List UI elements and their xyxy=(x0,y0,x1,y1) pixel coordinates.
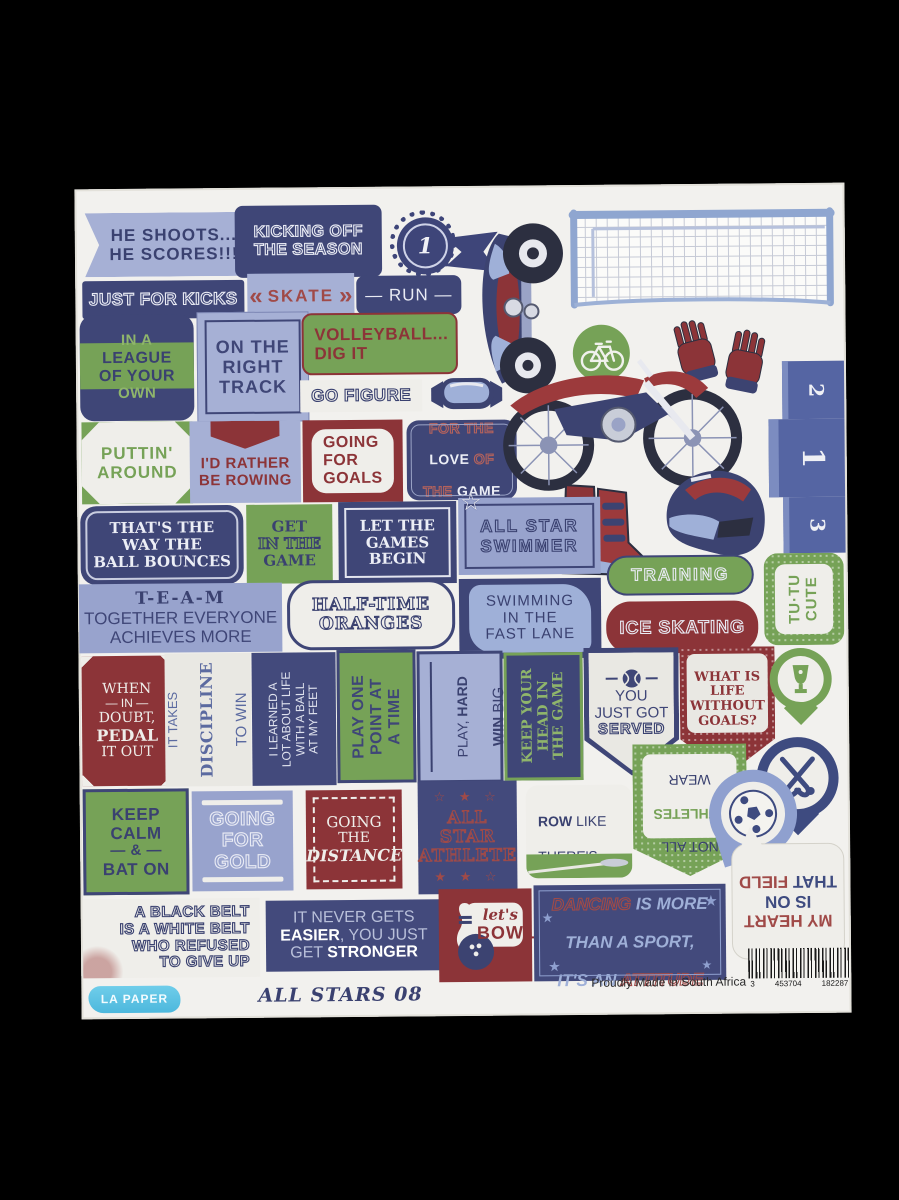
sticker-lets-bowl: let's BOWL xyxy=(439,888,533,982)
brand-label: LA PAPER xyxy=(101,992,168,1006)
when-line5: IT OUT xyxy=(101,744,153,760)
just-for-kicks-label: JUST FOR KICKS xyxy=(89,289,238,309)
gold-bar-bottom xyxy=(202,877,283,883)
sticker-it-never-gets: IT NEVER GETS EASIER, YOU JUST GET STRON… xyxy=(266,899,443,972)
sticker-learned-ball-feet: I LEARNED A LOT ABOUT LIFE WITH A BALL A… xyxy=(251,652,336,786)
run-label: — RUN — xyxy=(365,285,452,305)
ice-skating-label: ICE SKATING xyxy=(619,616,745,637)
go-figure-label: GO FIGURE xyxy=(311,386,411,406)
sticker-sheet: HE SHOOTS... HE SCORES!!! KICKING OFF TH… xyxy=(74,183,851,1020)
rosette-center: 1 xyxy=(397,217,454,274)
sticker-ice-skating: ICE SKATING xyxy=(606,600,758,653)
sticker-going-the-distance: GOING THE DISTANCE xyxy=(306,790,403,890)
collection-title: ALL STARS 08 xyxy=(258,983,422,1006)
my-heart-line2: IS ON xyxy=(765,891,811,910)
get-in-line3: GAME xyxy=(263,552,316,569)
sticker-thats-the-way: THAT'S THE WAY THE BALL BOUNCES xyxy=(80,505,244,585)
sticker-my-heart-field: MY HEART IS ON THAT FIELD xyxy=(731,843,845,960)
it-never-line2b: , YOU JUST xyxy=(340,926,428,944)
he-shoots-label: HE SHOOTS... HE SCORES!!! xyxy=(109,225,238,264)
sticker-discipline: IT TAKES DISCIPLINE TO WIN xyxy=(164,653,251,787)
photo-background: HE SHOOTS... HE SCORES!!! KICKING OFF TH… xyxy=(0,0,899,1200)
my-heart-line3a: THAT xyxy=(788,872,837,891)
tennis-ball-row xyxy=(605,668,657,688)
rowing-label: I'D RATHER BE ROWING xyxy=(199,456,292,490)
sticker-training: TRAINING xyxy=(607,554,754,595)
when-line1: WHEN xyxy=(102,682,151,698)
dancing-star-4: ★ xyxy=(548,959,561,975)
one-point-label: PLAY ONE POINT AT A TIME xyxy=(349,656,404,776)
play-hard-l1a: PLAY, xyxy=(454,717,470,758)
league-line2: LEAGUE xyxy=(102,350,172,369)
kicking-off-label: KICKING OFF THE SEASON xyxy=(253,223,363,260)
keep-calm-line1: KEEP xyxy=(112,805,160,824)
puttin-label: PUTTIN' AROUND xyxy=(97,443,178,482)
sticker-all-star-athlete: ☆ ★ ☆ ALL STAR ATHLETE ★ ★ ☆ xyxy=(418,781,518,895)
sticker-keep-calm-bat-on: KEEP CALM — & — BAT ON xyxy=(83,788,190,895)
helmet-icon xyxy=(655,459,774,562)
team-line1: T-E-A-M xyxy=(135,589,225,609)
served-line3: SERVED xyxy=(598,722,666,739)
tutu-label: TU·TU CUTE xyxy=(787,574,821,624)
training-label: TRAINING xyxy=(631,565,729,585)
brand-logo: LA PAPER xyxy=(88,985,180,1013)
row-like-l1b: LIKE xyxy=(572,812,606,828)
skate-chevron-left: « xyxy=(249,283,263,310)
dancing-star-3: ★ xyxy=(701,958,712,972)
my-heart-line1: MY HEART xyxy=(744,910,833,930)
athlete-label: ALL STAR ATHLETE xyxy=(418,808,517,866)
podium-first: 1 xyxy=(795,447,829,468)
rosette-number: 1 xyxy=(418,233,434,259)
dancing-border xyxy=(539,889,722,977)
when-line3: DOUBT, xyxy=(99,711,156,727)
sticker-going-for-gold: GOING FOR GOLD xyxy=(192,790,294,891)
get-in-line2: IN THE xyxy=(258,535,321,552)
podium-third: 3 xyxy=(806,518,829,532)
sticker-run: — RUN — xyxy=(356,275,461,315)
play-hard-l1b: HARD xyxy=(454,676,470,717)
it-never-line3a: GET xyxy=(290,945,327,962)
volleyball-label: VOLLEYBALL... DIG IT xyxy=(314,324,445,363)
keep-calm-line4: BAT ON xyxy=(103,859,170,879)
sticker-get-in-the-game: GET IN THE GAME xyxy=(246,504,333,584)
sticker-go-figure: GO FIGURE xyxy=(300,379,422,412)
swimmer-star-icon: ☆ xyxy=(460,490,482,517)
sticker-black-belt: A BLACK BELT IS A WHITE BELT WHO REFUSED… xyxy=(83,898,261,979)
goals-label: GOING FOR GOALS xyxy=(323,434,383,488)
sticker-half-time-oranges: HALF-TIME ORANGES xyxy=(287,579,456,650)
sticker-volleyball-dig-it: VOLLEYBALL... DIG IT xyxy=(301,312,458,375)
sticker-all-star-swimmer: ☆ ALL STAR SWIMMER xyxy=(458,497,601,575)
play-hard-arrow xyxy=(430,662,433,772)
served-line2: JUST GOT xyxy=(594,705,668,722)
not-all-line3: WEAR xyxy=(653,771,726,787)
oar-icon xyxy=(526,856,632,877)
goggles-icon xyxy=(428,372,505,418)
league-line1: IN A xyxy=(121,333,153,350)
my-heart-line3b: FIELD xyxy=(739,873,788,892)
distance-dashed-border xyxy=(313,797,396,883)
sticker-keep-your-head: KEEP YOUR HEAD IN THE GAME xyxy=(503,652,583,781)
gold-bar-top xyxy=(202,800,283,806)
it-never-line2a: EASIER xyxy=(280,927,340,945)
keep-head-label: KEEP YOUR HEAD IN THE GAME xyxy=(519,658,567,774)
dancing-star-2: ★ xyxy=(704,894,718,911)
discipline-line3: TO WIN xyxy=(233,657,251,782)
black-belt-label: A BLACK BELT IS A WHITE BELT WHO REFUSED… xyxy=(119,904,250,972)
sticker-tutu-cute: TU·TU CUTE xyxy=(764,553,845,646)
served-line1: YOU xyxy=(615,688,648,705)
it-never-line3b: STRONGER xyxy=(327,944,418,962)
get-in-line1: GET xyxy=(272,519,308,536)
discipline-line2: DISCIPLINE xyxy=(197,657,216,782)
play-hard-rotated: PLAY, HARD WIN BIG xyxy=(412,658,509,777)
sticker-row-like: ROW LIKE THERE'S NO TOMO-ROW! xyxy=(526,785,633,879)
athlete-stars-top: ☆ ★ ☆ xyxy=(434,790,501,805)
sticker-id-rather-be-rowing: I'D RATHER BE ROWING xyxy=(189,420,301,503)
what-life-label: WHAT IS LIFE WITHOUT GOALS? xyxy=(690,670,765,729)
let-games-border xyxy=(344,507,451,578)
sticker-play-one-point: PLAY ONE POINT AT A TIME xyxy=(336,649,416,783)
sticker-swimming-fast-lane: SWIMMING IN THE FAST LANE xyxy=(459,578,602,659)
swimmer-border xyxy=(464,503,595,569)
sticker-team: T-E-A-M TOGETHER EVERYONE ACHIEVES MORE xyxy=(79,583,283,654)
athlete-stars-bottom: ★ ★ ☆ xyxy=(434,870,501,885)
sticker-in-a-league: IN A LEAGUE OF YOUR OWN xyxy=(79,314,194,421)
sticker-play-hard-win-big: PLAY, HARD WIN BIG xyxy=(416,651,503,784)
rowing-chevron xyxy=(210,421,279,449)
team-line2: TOGETHER EVERYONE xyxy=(84,608,277,629)
bowl-line2: BOWL xyxy=(477,922,536,943)
barcode-bars xyxy=(748,948,850,979)
barcode-digit-left: 3 xyxy=(750,979,755,988)
podium-second: 2 xyxy=(805,383,828,397)
made-in-label: Proudly Made in South Africa xyxy=(591,975,746,990)
barcode-digits-mid: 453704 xyxy=(775,979,802,988)
skate-label: SKATE xyxy=(268,287,335,307)
league-line3: OF YOUR xyxy=(99,368,175,387)
keep-calm-line3: — & — xyxy=(110,843,162,860)
trophy-pin-icon xyxy=(769,648,832,737)
keep-calm-line2: CALM xyxy=(110,824,161,843)
it-never-line1: IT NEVER GETS xyxy=(293,908,415,927)
row-like-l1a: ROW xyxy=(538,813,572,829)
barcode-digits-right: 182287 xyxy=(822,979,849,988)
league-line4: OWN xyxy=(118,386,156,403)
gold-label: GOING FOR GOLD xyxy=(209,809,275,873)
tennis-ball-icon xyxy=(621,668,641,688)
team-line3: ACHIEVES MORE xyxy=(110,627,252,647)
barcode: 3 453704 182287 xyxy=(748,948,850,989)
winners-podium-icon: 2 1 3 xyxy=(768,361,846,554)
half-time-label: HALF-TIME ORANGES xyxy=(312,595,430,634)
dancing-star-1: ★ xyxy=(542,911,554,926)
track-inner-border xyxy=(205,319,302,414)
sticker-puttin-around: PUTTIN' AROUND xyxy=(81,421,193,504)
sticker-dancing: ★ ★ ★ ★ DANCING IS MORE THAN A SPORT, IT… xyxy=(533,884,726,982)
sticker-going-for-goals: GOING FOR GOALS xyxy=(302,420,403,503)
thats-border xyxy=(85,510,239,580)
discipline-line1: IT TAKES xyxy=(165,657,181,782)
sticker-on-the-right-track: ON THE RIGHT TRACK xyxy=(196,311,309,422)
sticker-kicking-off: KICKING OFF THE SEASON xyxy=(235,205,383,278)
sticker-let-the-games: LET THE GAMES BEGIN xyxy=(338,501,457,584)
learned-label: I LEARNED A LOT ABOUT LIFE WITH A BALL A… xyxy=(267,656,322,782)
skate-chevron-right: » xyxy=(339,283,353,310)
bubble-tail xyxy=(740,826,764,848)
swimming-label: SWIMMING IN THE FAST LANE xyxy=(485,593,575,644)
bowl-line1: let's xyxy=(483,907,518,924)
